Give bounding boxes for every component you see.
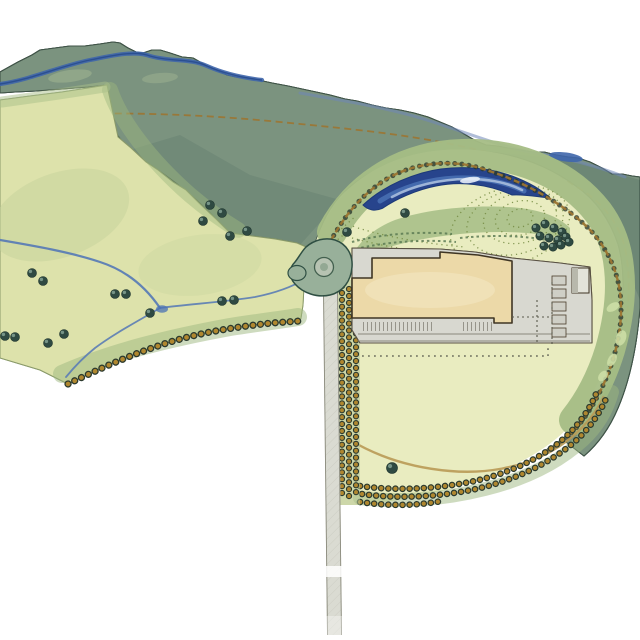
tree-highlight [550, 244, 553, 247]
tree-highlight [2, 333, 5, 336]
tree-symbol [11, 333, 20, 342]
tree-symbol [545, 234, 553, 242]
site-plan-canvas [0, 0, 640, 640]
site-plan-drawing [0, 0, 640, 640]
tree-symbol [230, 296, 239, 305]
tree-symbol [206, 201, 215, 210]
tree-highlight [542, 221, 545, 224]
tree-highlight [147, 310, 150, 313]
tree-symbol [565, 238, 573, 246]
tree-symbol [28, 269, 37, 278]
loading-docks [552, 276, 566, 337]
roundabout-west-arm [288, 266, 306, 281]
tree-symbol [199, 217, 208, 226]
tree-highlight [29, 270, 32, 273]
tree-symbol [387, 463, 398, 474]
tree-symbol [541, 220, 549, 228]
tree-highlight [123, 291, 126, 294]
tree-symbol [243, 227, 252, 236]
tree-highlight [200, 218, 203, 221]
tree-highlight [40, 278, 43, 281]
tree-highlight [402, 210, 405, 213]
tree-highlight [219, 210, 222, 213]
tree-symbol [401, 209, 410, 218]
tree-highlight [219, 298, 222, 301]
tree-symbol [39, 277, 48, 286]
tree-symbol [218, 209, 227, 218]
tree-highlight [555, 237, 558, 240]
tree-highlight [207, 202, 210, 205]
tree-highlight [563, 234, 566, 237]
building-roof-light [365, 272, 495, 308]
stream-confluence-pool [156, 305, 168, 313]
tree-symbol [540, 242, 548, 250]
tree-symbol [549, 243, 557, 251]
tree-highlight [559, 229, 562, 232]
road-fade [318, 616, 348, 640]
tree-symbol [111, 290, 120, 299]
tree-symbol [60, 330, 69, 339]
tree-symbol [122, 290, 131, 299]
tree-symbol [532, 224, 540, 232]
tree-highlight [112, 291, 115, 294]
tree-symbol [1, 332, 10, 341]
tree-symbol [226, 232, 235, 241]
roundabout-island-centre [320, 263, 328, 271]
tree-highlight [566, 239, 569, 242]
tree-highlight [344, 229, 347, 232]
tree-highlight [537, 233, 540, 236]
tree-highlight [541, 243, 544, 246]
tree-highlight [61, 331, 64, 334]
tree-highlight [231, 297, 234, 300]
building-site [352, 248, 592, 356]
tree-highlight [546, 235, 549, 238]
tree-symbol [536, 232, 544, 240]
tree-highlight [551, 225, 554, 228]
road-break [320, 566, 344, 577]
tree-symbol [146, 309, 155, 318]
tree-highlight [12, 334, 15, 337]
tree-symbol [550, 224, 558, 232]
tree-symbol [557, 241, 565, 249]
tree-symbol [343, 228, 352, 237]
tree-highlight [45, 340, 48, 343]
tree-highlight [244, 228, 247, 231]
tree-highlight [388, 464, 392, 468]
lawn-tree [387, 463, 398, 474]
tree-symbol [44, 339, 53, 348]
tree-highlight [533, 225, 536, 228]
tree-highlight [558, 242, 561, 245]
tree-highlight [227, 233, 230, 236]
tree-symbol [218, 297, 227, 306]
annex-building [572, 268, 589, 293]
